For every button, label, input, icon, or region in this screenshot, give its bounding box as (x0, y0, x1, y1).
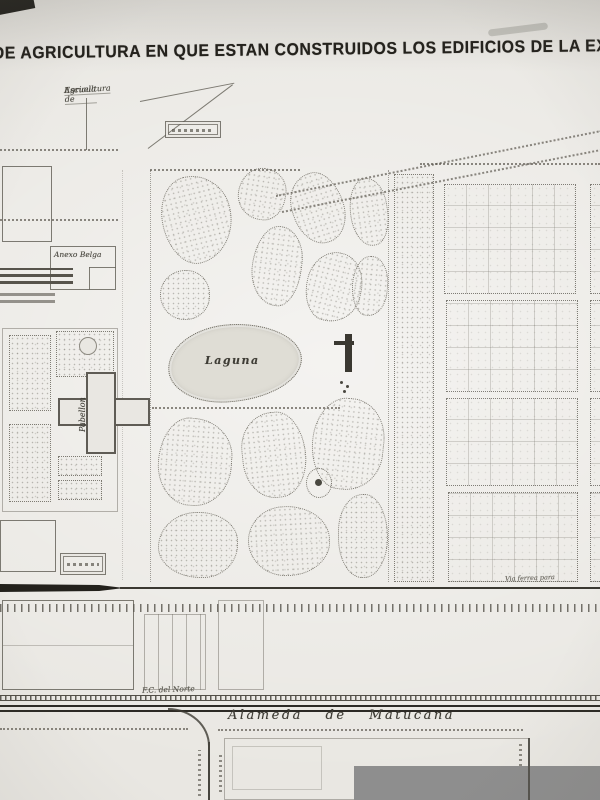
garden-plot-partial (590, 398, 600, 486)
hatched-structure (0, 292, 55, 303)
curved-street (168, 708, 210, 746)
building-partition (89, 267, 90, 290)
park-bed (247, 223, 306, 308)
building-block (0, 520, 56, 572)
small-building-box (165, 121, 221, 138)
label-escuela-line2: Agricultura (64, 84, 111, 96)
shed-building (144, 614, 206, 690)
label-pabellon: Pabellon (78, 378, 108, 452)
illegible-vertical-text (519, 742, 522, 766)
park-bed (152, 168, 241, 270)
illegible-text (172, 129, 214, 132)
garden-bed (9, 335, 51, 411)
label-laguna: Laguna (205, 354, 260, 367)
monument-icon (345, 334, 352, 372)
garden-plot-partial (590, 184, 600, 294)
label-anexo-belga: Anexo Belga (54, 250, 101, 259)
park-bed (160, 270, 210, 320)
hatched-structure (0, 268, 73, 284)
dotted-road (420, 163, 600, 165)
building-partition (3, 645, 133, 646)
garden-plot (444, 184, 576, 294)
label-fc-del-norte: F.C. del Norte (142, 684, 195, 695)
entrance-road-line (148, 84, 233, 149)
label-alameda-matucana: Alameda de Matucana (228, 708, 455, 723)
small-building-box (60, 553, 106, 575)
dotted-road (122, 170, 123, 580)
illegible-vertical-text (198, 750, 201, 796)
scanned-map-page: AL DE AGRICULTURA EN QUE ESTAN CONSTRUID… (0, 0, 600, 800)
garden-plot (448, 492, 578, 582)
building-block (2, 600, 134, 690)
garden-plot-partial (590, 492, 600, 582)
map-title: AL DE AGRICULTURA EN QUE ESTAN CONSTRUID… (0, 36, 600, 64)
park-boundary (388, 170, 389, 582)
fountain-center (315, 479, 322, 486)
building-partition (89, 267, 116, 268)
illegible-vertical-text (219, 752, 222, 792)
park-boundary (150, 170, 151, 582)
park-bed (158, 512, 238, 578)
building-block (2, 166, 52, 242)
garden-plot-partial (590, 300, 600, 392)
railway-hatched-line (0, 695, 600, 701)
dotted-road (150, 169, 300, 171)
park-bed (338, 494, 388, 578)
watermark-box (354, 766, 600, 800)
garden-plot (446, 398, 578, 486)
dotted-road (0, 149, 118, 151)
park-bed (345, 176, 392, 249)
map-dot (346, 385, 349, 388)
scan-corner-mark (0, 0, 35, 16)
nursery-strip (394, 174, 434, 582)
building-block (218, 600, 264, 690)
park-bed (238, 409, 311, 501)
side-street-line (208, 742, 210, 800)
garden-circle (79, 337, 97, 355)
dotted-road (0, 728, 188, 730)
garden-bed (58, 456, 102, 476)
entrance-road-line (86, 98, 87, 150)
illegible-text (67, 563, 99, 566)
side-street-line (528, 738, 530, 800)
map-dot (343, 390, 346, 393)
park-path (152, 407, 340, 409)
map-dot (340, 381, 343, 384)
railway-line (120, 587, 600, 589)
park-bed (155, 416, 235, 509)
garden-bed (58, 480, 102, 500)
park-bed (246, 504, 332, 578)
garden-plot (446, 300, 578, 392)
city-block-inner (232, 746, 322, 790)
park-bed (234, 165, 290, 224)
garden-bed (9, 424, 51, 502)
dotted-road (218, 729, 523, 731)
railway-thick-line (0, 584, 124, 592)
scan-smudge (488, 22, 548, 36)
